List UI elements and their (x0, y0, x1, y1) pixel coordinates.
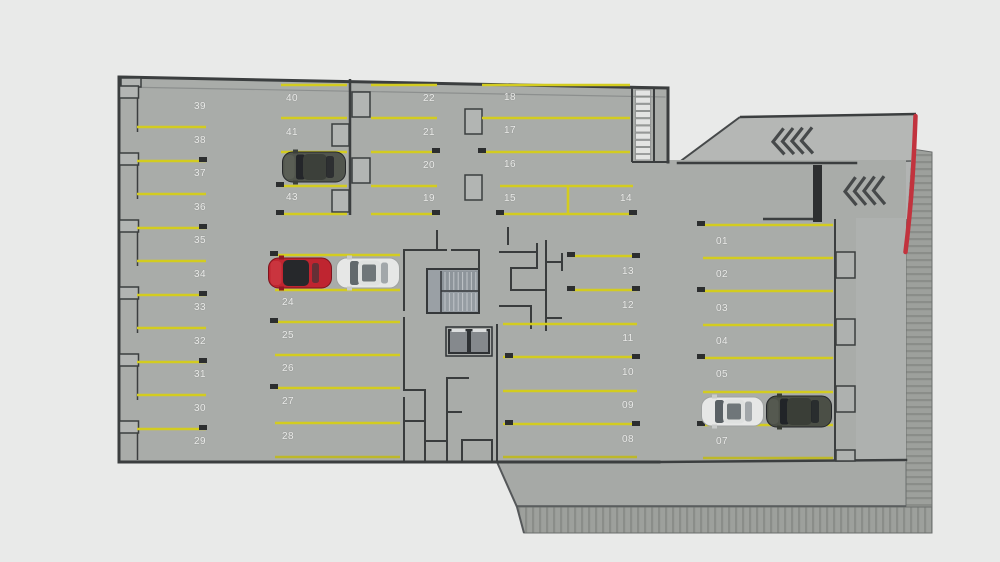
spot-label-28: 28 (282, 432, 294, 442)
spot-label-09: 09 (622, 401, 634, 411)
red-car-center (269, 256, 332, 291)
car-dark-upper-left (283, 150, 346, 185)
parking-floor-plan: 39 38 37 36 35 34 33 32 31 30 29 40 41 4… (0, 0, 1000, 562)
white-car-center (337, 256, 400, 291)
spot-label-11: 11 (622, 334, 633, 344)
spot-label-14: 14 (620, 194, 632, 204)
spot-label-37: 37 (194, 169, 206, 179)
spot-label-24: 24 (282, 298, 294, 308)
spot-label-41: 41 (286, 128, 298, 138)
spot-label-35: 35 (194, 236, 206, 246)
spot-label-34: 34 (194, 270, 206, 280)
spot-label-13: 13 (622, 267, 634, 277)
spot-label-15: 15 (504, 194, 516, 204)
stairwell-core (427, 269, 479, 313)
spot-label-10: 10 (622, 368, 634, 378)
spot-label-22: 22 (423, 94, 435, 104)
spot-label-39: 39 (194, 102, 206, 112)
spot-label-21: 21 (423, 128, 435, 138)
spot-label-03: 03 (716, 304, 728, 314)
spot-label-18: 18 (504, 93, 516, 103)
spot-label-26: 26 (282, 364, 294, 374)
spot-label-04: 04 (716, 337, 728, 347)
spot-label-29: 29 (194, 437, 206, 447)
spot-label-08: 08 (622, 435, 634, 445)
spot-label-20: 20 (423, 161, 435, 171)
spot-label-30: 30 (194, 404, 206, 414)
spot-label-43: 43 (286, 193, 298, 203)
spot-label-07: 07 (716, 437, 728, 447)
spot-label-36: 36 (194, 203, 206, 213)
spot-label-25: 25 (282, 331, 294, 341)
spot-label-16: 16 (504, 160, 516, 170)
spot-label-32: 32 (194, 337, 206, 347)
spot-label-02: 02 (716, 270, 728, 280)
spot-label-27: 27 (282, 397, 294, 407)
spot-label-31: 31 (194, 370, 206, 380)
elevators (446, 327, 492, 356)
spot-label-40: 40 (286, 94, 298, 104)
ramp-wall-bar (813, 165, 822, 222)
spot-label-38: 38 (194, 136, 206, 146)
stair-treads (636, 90, 651, 160)
dark-car-right (767, 394, 832, 430)
spot-label-17: 17 (504, 126, 516, 136)
spot-label-19: 19 (423, 194, 435, 204)
spot-label-12: 12 (622, 301, 634, 311)
spot-label-05: 05 (716, 370, 728, 380)
spot-label-01: 01 (716, 237, 728, 247)
spot-label-33: 33 (194, 303, 206, 313)
floor-plan-drawing (0, 0, 1000, 562)
white-car-right (702, 395, 764, 429)
